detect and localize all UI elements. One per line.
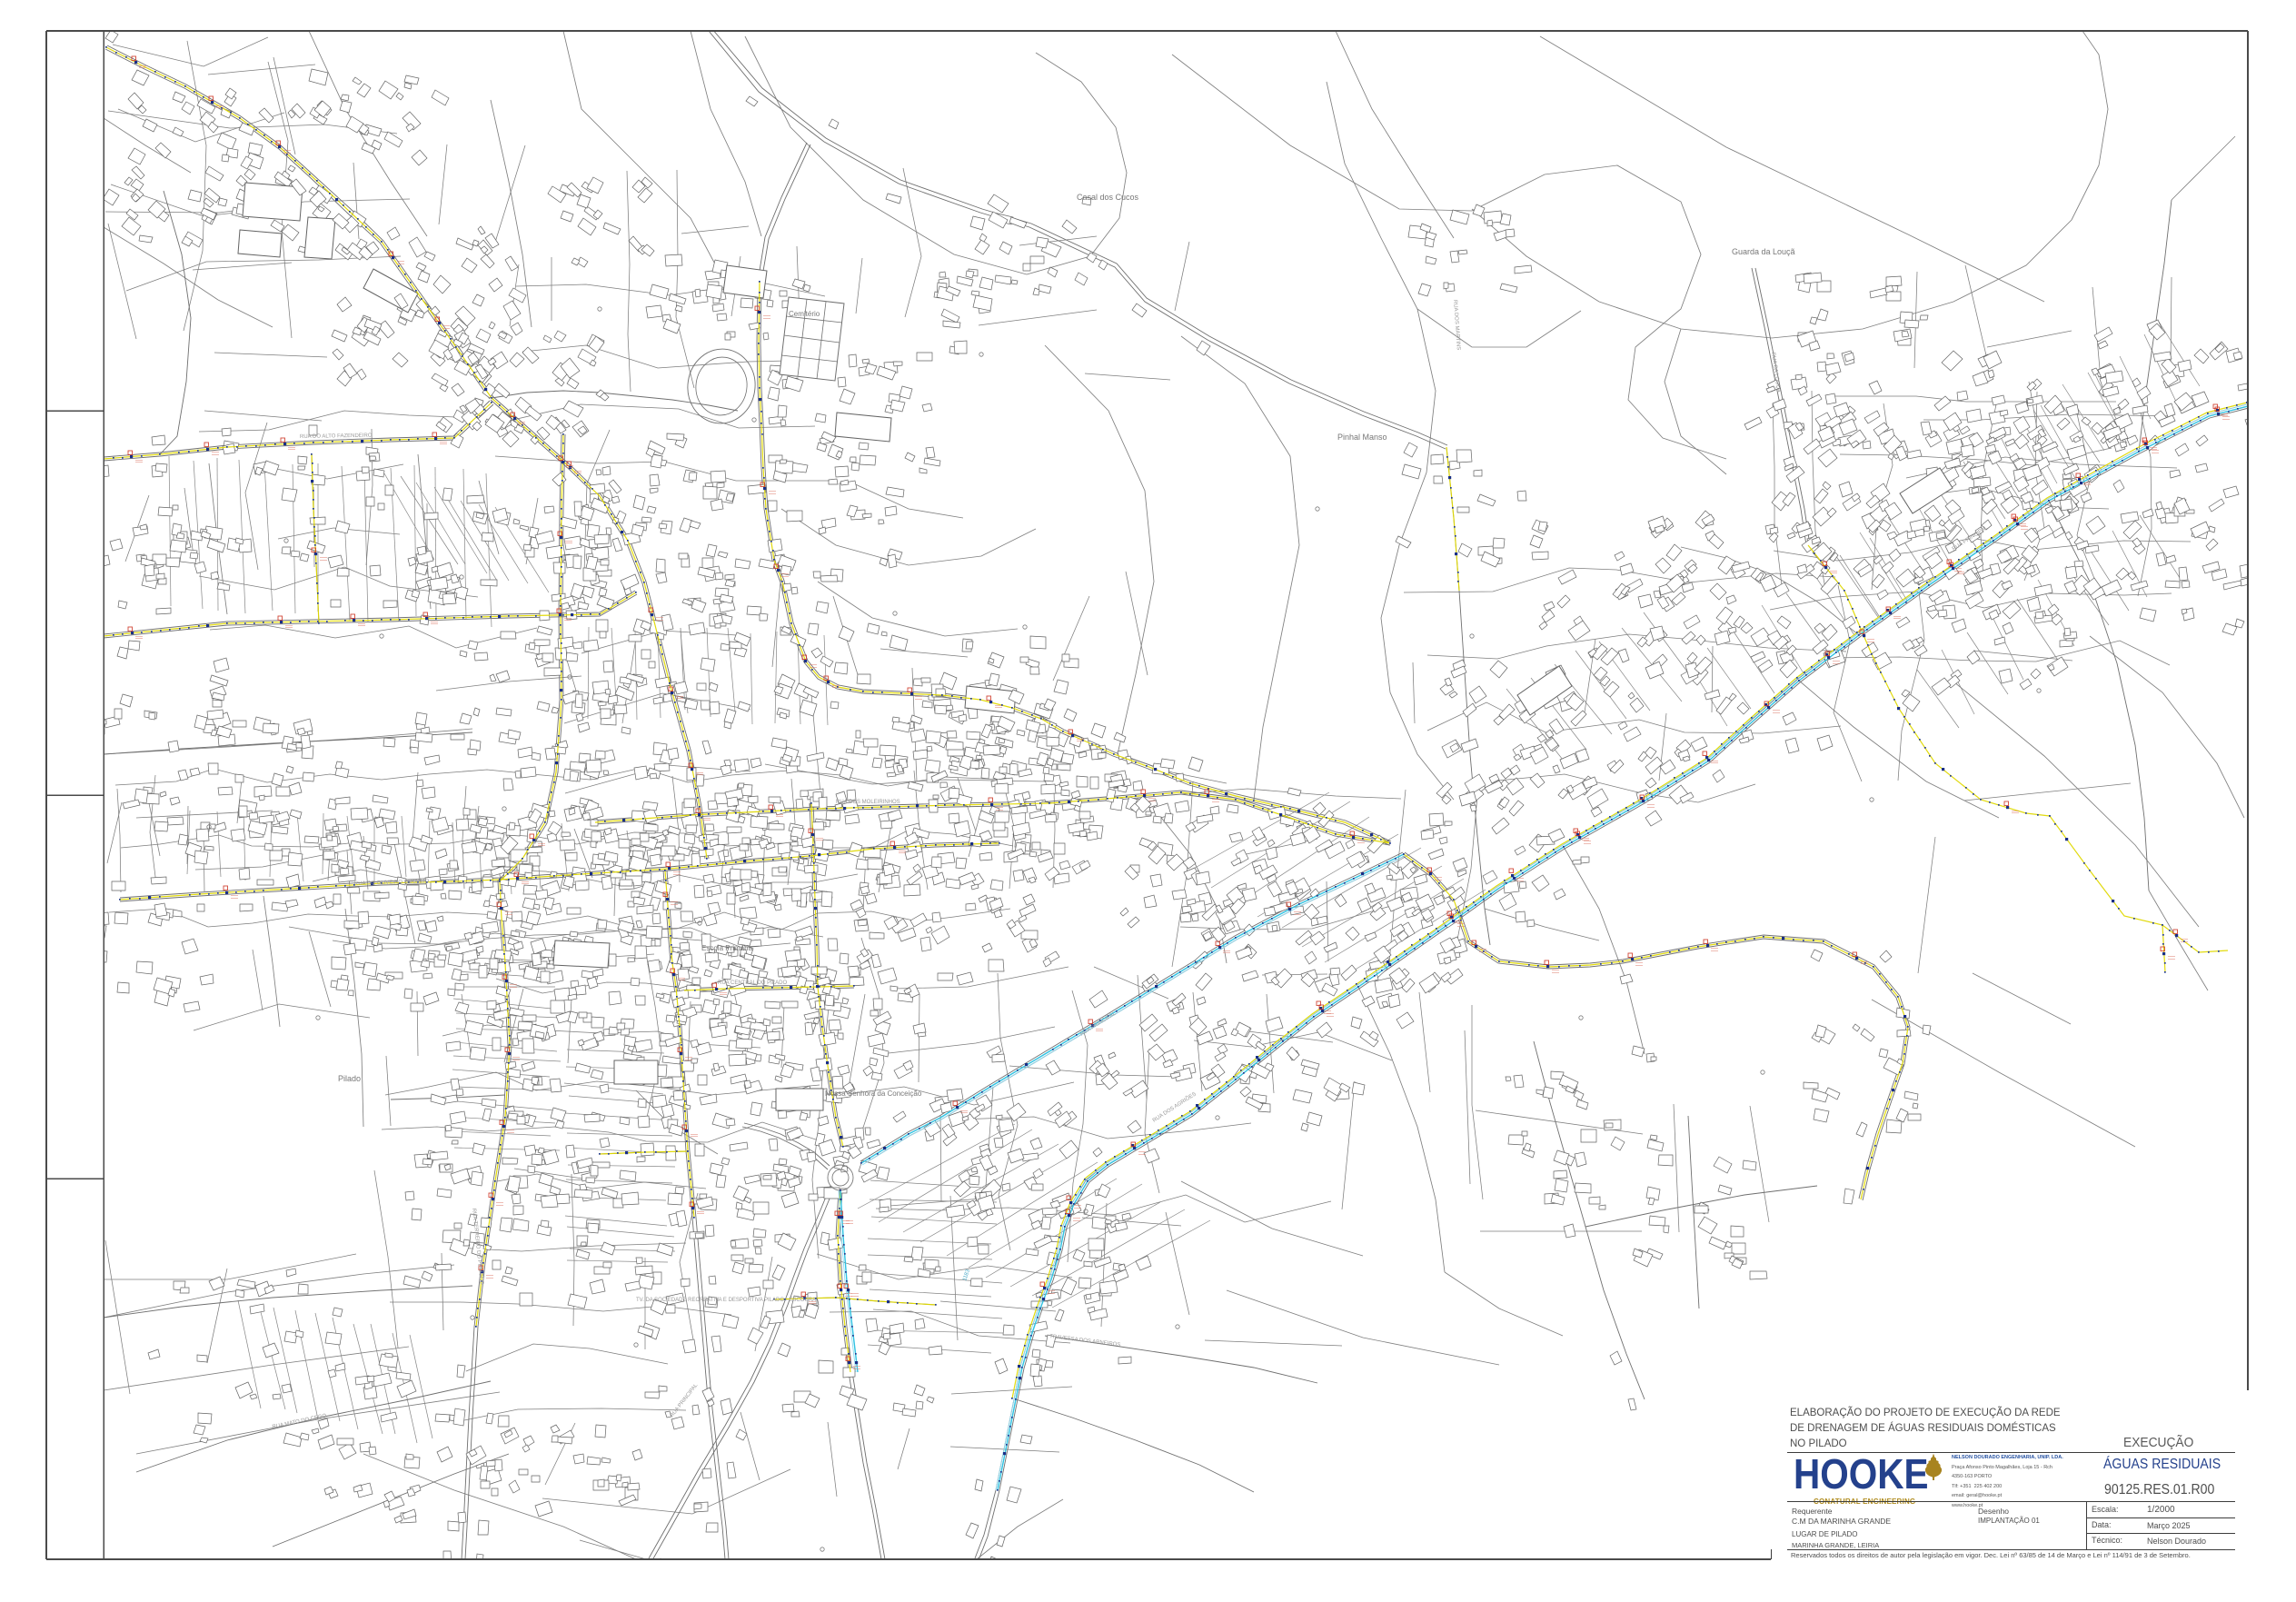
svg-text:Escola Primária: Escola Primária — [701, 944, 753, 952]
svg-text:Guarda da Louçã: Guarda da Louçã — [1732, 247, 1795, 256]
svg-text:RUA CENTRAL DO PILADO: RUA CENTRAL DO PILADO — [718, 980, 787, 986]
svg-text:RUA DOS MOLEIRINHOS: RUA DOS MOLEIRINHOS — [836, 800, 900, 805]
svg-text:Nossa Senhora da Conceição: Nossa Senhora da Conceição — [825, 1090, 922, 1098]
svg-text:Pilado: Pilado — [338, 1074, 361, 1083]
svg-text:Cemitério: Cemitério — [789, 310, 820, 318]
svg-text:TV. DA SOCIEDADE RECREATIVA E: TV. DA SOCIEDADE RECREATIVA E DESPORTIVA… — [636, 1298, 816, 1303]
svg-text:Casal dos Cucos: Casal dos Cucos — [1077, 193, 1139, 202]
svg-text:Pinhal Manso: Pinhal Manso — [1337, 433, 1387, 442]
